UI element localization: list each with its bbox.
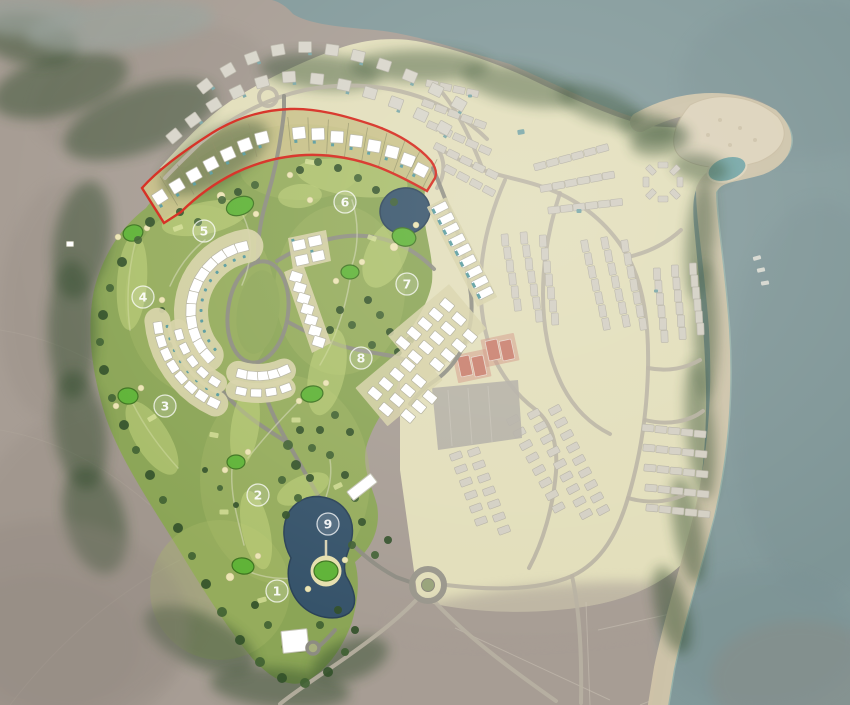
masterplan-svg: 123456789	[0, 0, 850, 705]
masterplan-canvas: 123456789	[0, 0, 850, 705]
